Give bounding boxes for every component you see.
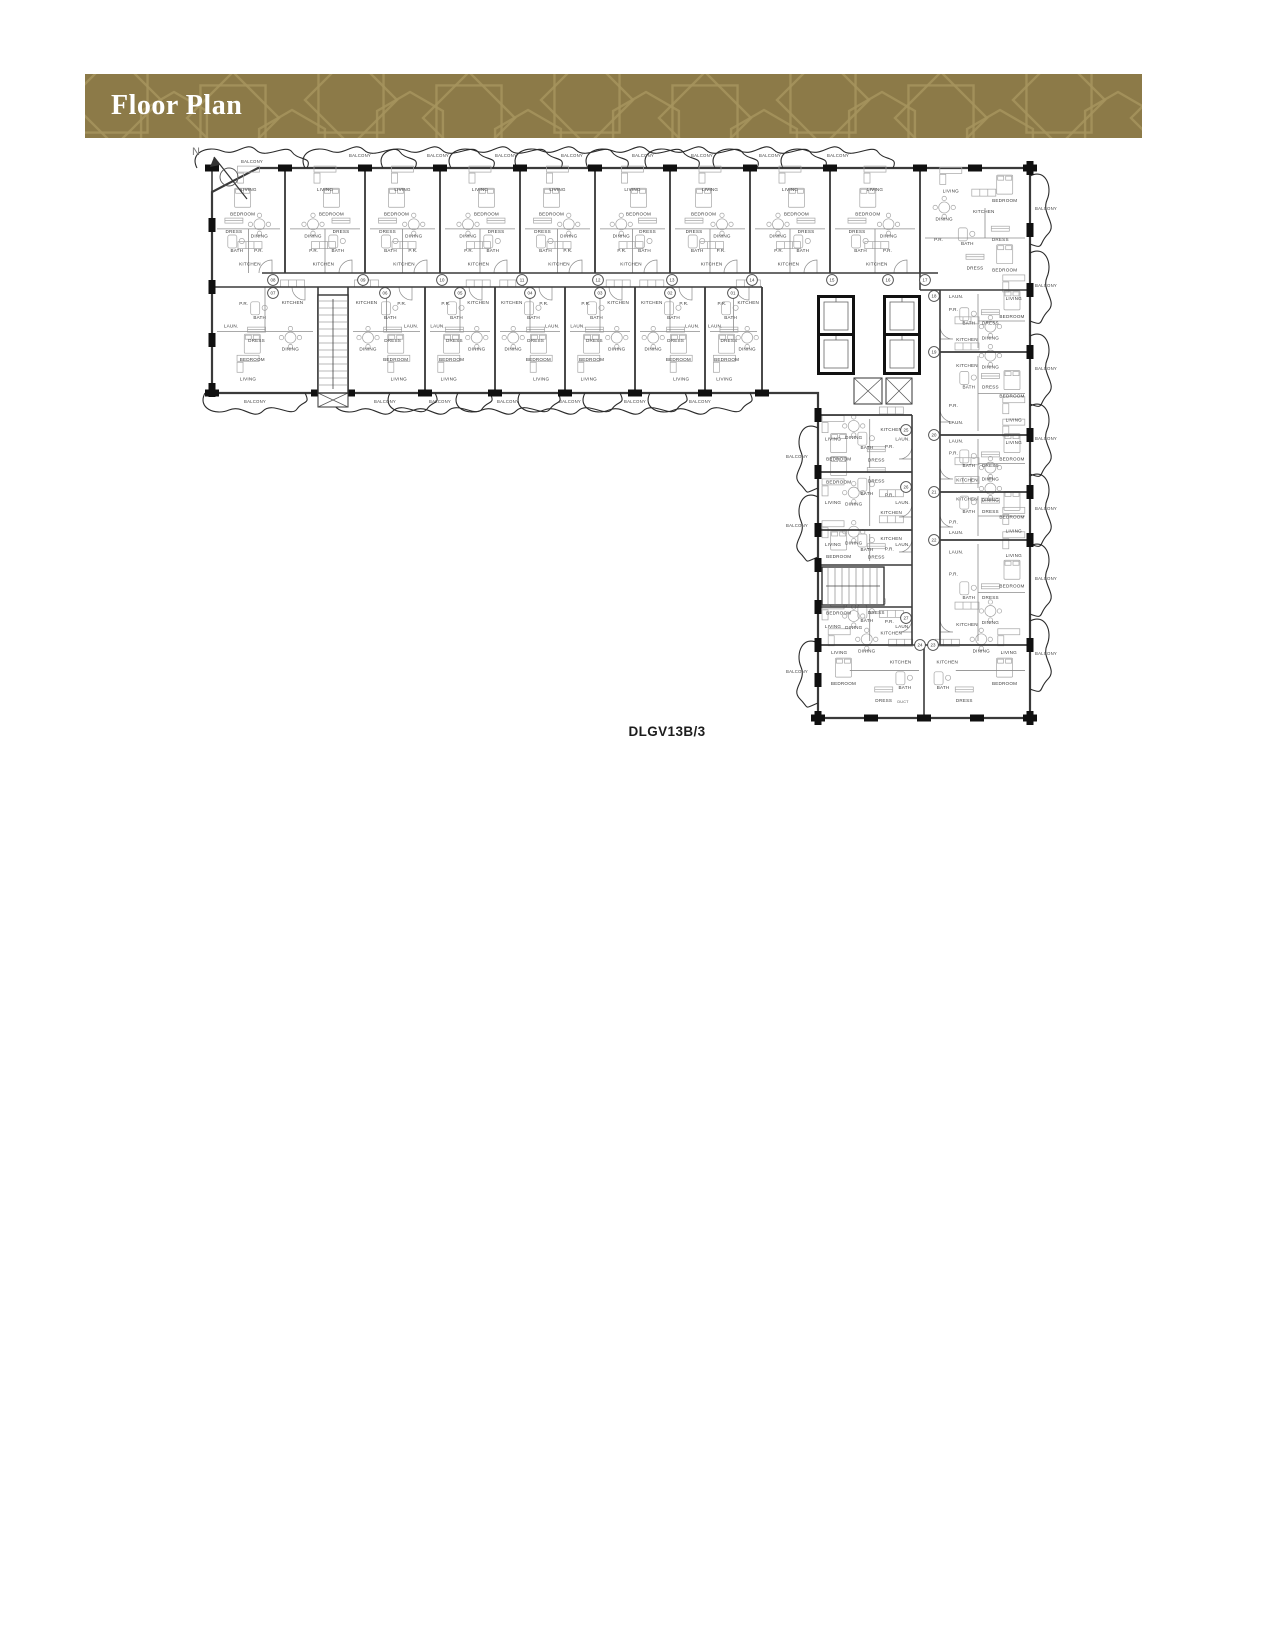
room-label: KITCHEN xyxy=(881,630,903,635)
room-label: BALCONY xyxy=(349,153,371,158)
room-label: DRESS xyxy=(982,321,999,326)
room-label: KITCHEN xyxy=(890,659,912,664)
window-pier xyxy=(970,715,984,722)
room-label: BATH xyxy=(962,509,975,514)
room-label: BATH xyxy=(230,248,243,253)
room-label: DINING xyxy=(505,347,523,352)
room-label: P.R. xyxy=(934,237,943,242)
room-label: LIVING xyxy=(1006,296,1022,301)
room-label: DRESS xyxy=(586,338,603,343)
room-label: BATH xyxy=(962,463,975,468)
room-label: BALCONY xyxy=(1035,506,1057,511)
room-label: KITCHEN xyxy=(607,300,629,305)
room-label: DINING xyxy=(845,625,863,630)
window-pier xyxy=(663,165,677,172)
room-label: LAUN. xyxy=(895,624,910,629)
room-label: P.R. xyxy=(408,248,417,253)
room-label: DRESS xyxy=(333,229,350,234)
room-label: KITCHEN xyxy=(956,497,978,502)
room-label: BEDROOM xyxy=(992,268,1017,273)
room-label: BATH xyxy=(691,248,704,253)
unit-number: 02 xyxy=(668,291,673,296)
window-pier xyxy=(1027,283,1034,297)
room-label: LAUN. xyxy=(570,323,585,328)
room-label: KITCHEN xyxy=(501,300,523,305)
window-pier xyxy=(418,390,432,397)
unit-number: 27 xyxy=(904,616,909,621)
room-label: BALCONY xyxy=(1035,283,1057,288)
room-label: P.R. xyxy=(679,301,688,306)
room-label: DINING xyxy=(845,435,863,440)
room-label: LAUN. xyxy=(404,323,419,328)
room-label: BALCONY xyxy=(624,399,646,404)
window-pier xyxy=(588,165,602,172)
room-label: BALCONY xyxy=(1035,436,1057,441)
room-label: KITCHEN xyxy=(701,262,723,267)
room-label: LIVING xyxy=(472,187,488,192)
room-label: KITCHEN xyxy=(956,622,978,627)
window-pier xyxy=(743,165,757,172)
room-label: DRESS xyxy=(667,338,684,343)
room-label: DINING xyxy=(769,233,787,238)
unit-number: 23 xyxy=(931,643,936,648)
room-label: KITCHEN xyxy=(778,262,800,267)
room-label: BEDROOM xyxy=(999,394,1024,399)
room-label: BATH xyxy=(861,618,874,623)
room-label: BALCONY xyxy=(244,399,266,404)
room-label: DRESS xyxy=(982,509,999,514)
unit-number: 11 xyxy=(520,278,525,283)
room-label: DRESS xyxy=(639,229,656,234)
unit-number: 03 xyxy=(598,291,603,296)
room-label: DRESS xyxy=(992,237,1009,242)
window-pier xyxy=(209,218,216,232)
room-label: P.R. xyxy=(464,248,473,253)
window-pier xyxy=(209,280,216,294)
window-pier xyxy=(513,165,527,172)
room-label: LAUN. xyxy=(224,323,239,328)
unit-number: 16 xyxy=(886,278,891,283)
room-label: P.R. xyxy=(239,301,248,306)
room-label: BALCONY xyxy=(429,399,451,404)
room-label: BATH xyxy=(796,248,809,253)
room-label: LIVING xyxy=(317,187,333,192)
room-label: BALCONY xyxy=(1035,366,1057,371)
unit-number: 04 xyxy=(528,291,533,296)
room-label: DRESS xyxy=(446,338,463,343)
window-pier xyxy=(815,465,822,479)
window-pier xyxy=(358,165,372,172)
room-label: DINING xyxy=(982,498,1000,503)
room-label: DINING xyxy=(982,336,1000,341)
room-label: KITCHEN xyxy=(973,209,995,214)
room-label: LAUN. xyxy=(685,323,700,328)
room-label: BATH xyxy=(253,315,266,320)
room-label: BALCONY xyxy=(786,454,808,459)
room-label: KITCHEN xyxy=(866,262,888,267)
unit-number: 25 xyxy=(904,428,909,433)
room-label: BEDROOM xyxy=(784,211,809,216)
room-label: DINING xyxy=(858,648,876,653)
room-label: LIVING xyxy=(702,187,718,192)
room-label: KITCHEN xyxy=(738,300,760,305)
room-label: DRESS xyxy=(868,458,885,463)
room-label: LIVING xyxy=(782,187,798,192)
room-label: KITCHEN xyxy=(881,510,903,515)
room-label: KITCHEN xyxy=(282,300,304,305)
room-label: BATH xyxy=(962,321,975,326)
room-label: P.R. xyxy=(774,248,783,253)
room-label: LIVING xyxy=(831,650,847,655)
room-label: LIVING xyxy=(240,187,256,192)
room-label: BALCONY xyxy=(691,153,713,158)
room-label: BATH xyxy=(527,315,540,320)
room-label: LIVING xyxy=(825,624,841,629)
room-label: P.R. xyxy=(718,301,727,306)
unit-number: 17 xyxy=(923,278,928,283)
unit-number: 18 xyxy=(932,294,937,299)
room-label: BALCONY xyxy=(241,159,263,164)
window-pier xyxy=(811,715,825,722)
room-label: DINING xyxy=(608,347,626,352)
room-label: LAUN. xyxy=(949,550,964,555)
window-pier xyxy=(433,165,447,172)
room-label: BALCONY xyxy=(497,399,519,404)
room-label: P.R. xyxy=(581,301,590,306)
room-label: LIVING xyxy=(624,187,640,192)
room-label: KITCHEN xyxy=(881,427,903,432)
room-label: KITCHEN xyxy=(313,262,335,267)
room-label: BATH xyxy=(638,248,651,253)
room-label: BEDROOM xyxy=(826,457,851,462)
room-label: P.R. xyxy=(883,248,892,253)
room-label: DINING xyxy=(845,502,863,507)
window-pier xyxy=(1027,533,1034,547)
room-label: LIVING xyxy=(1006,528,1022,533)
room-label: BEDROOM xyxy=(539,211,564,216)
room-label: DRESS xyxy=(384,338,401,343)
room-label: BATH xyxy=(590,315,603,320)
room-label: DRESS xyxy=(721,338,738,343)
unit-number: 12 xyxy=(596,278,601,283)
room-label: BATH xyxy=(384,248,397,253)
room-label: LAUN. xyxy=(949,438,964,443)
room-label: P.R. xyxy=(949,572,958,577)
window-pier xyxy=(209,383,216,397)
room-label: BEDROOM xyxy=(826,554,851,559)
room-label: P.R. xyxy=(309,248,318,253)
room-label: P.R. xyxy=(563,248,572,253)
room-label: DINING xyxy=(936,216,954,221)
room-label: BEDROOM xyxy=(691,211,716,216)
room-label: BATH xyxy=(861,491,874,496)
room-label: DRESS xyxy=(982,595,999,600)
room-label: KITCHEN xyxy=(393,262,415,267)
room-label: P.R. xyxy=(539,301,548,306)
unit-number: 13 xyxy=(670,278,675,283)
room-label: DRESS xyxy=(982,385,999,390)
room-label: DINING xyxy=(251,233,269,238)
room-label: DRESS xyxy=(798,229,815,234)
unit-number: 19 xyxy=(932,350,937,355)
room-label: DRESS xyxy=(248,338,265,343)
window-pier xyxy=(864,715,878,722)
unit-number: 20 xyxy=(932,433,937,438)
room-label: DRESS xyxy=(875,698,892,703)
room-label: DINING xyxy=(973,648,991,653)
room-label: KITCHEN xyxy=(356,300,378,305)
room-label: P.R. xyxy=(717,248,726,253)
unit-number: 10 xyxy=(440,278,445,283)
unit-number: 08 xyxy=(271,278,276,283)
room-label: LIVING xyxy=(867,187,883,192)
room-label: DRESS xyxy=(967,265,984,270)
room-label: BATH xyxy=(961,241,974,246)
room-label: BALCONY xyxy=(759,153,781,158)
room-label: BATH xyxy=(962,595,975,600)
window-pier xyxy=(698,390,712,397)
room-label: BATH xyxy=(861,547,874,552)
room-label: DINING xyxy=(739,347,757,352)
room-label: BATH xyxy=(937,685,950,690)
room-label: LIVING xyxy=(716,376,732,381)
room-label: BATH xyxy=(962,385,975,390)
unit-number: 07 xyxy=(271,291,276,296)
room-label: BALCONY xyxy=(1035,206,1057,211)
room-label: BEDROOM xyxy=(579,357,604,362)
room-label: BATH xyxy=(450,315,463,320)
window-pier xyxy=(1027,223,1034,237)
room-label: LIVING xyxy=(673,376,689,381)
room-label: BEDROOM xyxy=(999,457,1024,462)
room-label: KITCHEN xyxy=(620,262,642,267)
room-label: BATH xyxy=(331,248,344,253)
room-label: DRESS xyxy=(686,229,703,234)
window-pier xyxy=(823,165,837,172)
unit-number: 14 xyxy=(750,278,755,283)
room-label: LIVING xyxy=(1001,650,1017,655)
room-label: LAUN. xyxy=(708,323,723,328)
room-label: BEDROOM xyxy=(626,211,651,216)
room-label: DINING xyxy=(359,347,377,352)
room-label: BALCONY xyxy=(786,669,808,674)
window-pier xyxy=(1027,345,1034,359)
room-label: DINING xyxy=(468,347,486,352)
unit-number: 22 xyxy=(932,538,937,543)
room-label: BALCONY xyxy=(1035,651,1057,656)
room-label: LIVING xyxy=(943,188,959,193)
window-pier xyxy=(755,390,769,397)
room-label: BEDROOM xyxy=(384,211,409,216)
room-label: P.R. xyxy=(949,307,958,312)
room-label: BEDROOM xyxy=(992,681,1017,686)
room-label: LIVING xyxy=(825,500,841,505)
window-pier xyxy=(815,600,822,614)
room-label: KITCHEN xyxy=(548,262,570,267)
room-label: LIVING xyxy=(549,187,565,192)
room-label: BEDROOM xyxy=(383,357,408,362)
room-label: BEDROOM xyxy=(999,314,1024,319)
room-label: DUCT xyxy=(897,700,909,704)
room-label: DRESS xyxy=(868,555,885,560)
north-label: N xyxy=(192,146,200,158)
unit-number: 06 xyxy=(383,291,388,296)
room-label: BEDROOM xyxy=(230,211,255,216)
room-label: BALCONY xyxy=(559,399,581,404)
unit-number: 26 xyxy=(904,485,909,490)
plan-code-label: DLGV13B/3 xyxy=(628,724,705,739)
room-label: BATH xyxy=(486,248,499,253)
window-pier xyxy=(278,165,292,172)
window-pier xyxy=(209,333,216,347)
room-label: DINING xyxy=(282,347,300,352)
room-label: DRESS xyxy=(868,610,885,615)
room-label: BEDROOM xyxy=(240,357,265,362)
room-label: P.R. xyxy=(885,492,894,497)
room-label: BALCONY xyxy=(632,153,654,158)
window-pier xyxy=(1027,485,1034,499)
room-label: DINING xyxy=(982,477,1000,482)
room-label: BEDROOM xyxy=(992,198,1017,203)
unit-number: 09 xyxy=(361,278,366,283)
room-label: KITCHEN xyxy=(937,659,959,664)
room-label: LAUN. xyxy=(949,420,964,425)
unit-number: 05 xyxy=(458,291,463,296)
room-label: LIVING xyxy=(394,187,410,192)
room-label: BALCONY xyxy=(1035,576,1057,581)
room-label: DINING xyxy=(845,541,863,546)
window-pier xyxy=(628,390,642,397)
window-pier xyxy=(815,408,822,422)
unit-number: 01 xyxy=(731,291,736,296)
room-label: BATH xyxy=(899,685,912,690)
room-label: KITCHEN xyxy=(467,300,489,305)
room-label: DRESS xyxy=(956,698,973,703)
room-label: LIVING xyxy=(391,376,407,381)
room-label: DINING xyxy=(880,233,898,238)
window-pier xyxy=(968,165,982,172)
unit-number: 15 xyxy=(830,278,835,283)
room-label: P.R. xyxy=(617,248,626,253)
room-label: BEDROOM xyxy=(826,480,851,485)
window-pier xyxy=(815,558,822,572)
room-label: BEDROOM xyxy=(855,211,880,216)
room-label: DINING xyxy=(713,233,731,238)
room-label: P.R. xyxy=(949,403,958,408)
room-label: BALCONY xyxy=(827,153,849,158)
balcony-outline xyxy=(797,426,818,492)
room-label: BEDROOM xyxy=(526,357,551,362)
room-label: BATH xyxy=(724,315,737,320)
window-pier xyxy=(913,165,927,172)
room-label: BEDROOM xyxy=(474,211,499,216)
room-label: DRESS xyxy=(527,338,544,343)
room-label: BATH xyxy=(667,315,680,320)
room-label: BALCONY xyxy=(786,523,808,528)
room-label: BATH xyxy=(861,445,874,450)
room-label: LAUN. xyxy=(895,500,910,505)
room-label: KITCHEN xyxy=(956,363,978,368)
room-label: DINING xyxy=(982,620,1000,625)
room-label: LIVING xyxy=(1006,553,1022,558)
room-label: DINING xyxy=(645,347,663,352)
unit-number: 24 xyxy=(918,643,923,648)
window-pier xyxy=(488,390,502,397)
room-label: LIVING xyxy=(581,376,597,381)
room-label: BATH xyxy=(384,315,397,320)
room-label: BEDROOM xyxy=(439,357,464,362)
room-label: LIVING xyxy=(1006,418,1022,423)
room-label: DINING xyxy=(304,233,322,238)
unit-number: 21 xyxy=(932,490,937,495)
room-label: P.R. xyxy=(885,619,894,624)
room-label: LAUN. xyxy=(949,530,964,535)
room-label: BEDROOM xyxy=(319,211,344,216)
room-label: BEDROOM xyxy=(999,583,1024,588)
room-label: LIVING xyxy=(825,437,841,442)
window-pier xyxy=(815,673,822,687)
room-label: LIVING xyxy=(825,542,841,547)
room-label: BATH xyxy=(539,248,552,253)
room-label: LIVING xyxy=(533,376,549,381)
room-label: BEDROOM xyxy=(714,357,739,362)
room-label: DRESS xyxy=(534,229,551,234)
room-label: P.R. xyxy=(397,301,406,306)
room-label: KITCHEN xyxy=(239,262,261,267)
room-label: P.R. xyxy=(885,444,894,449)
room-label: P.R. xyxy=(949,520,958,525)
room-label: DRESS xyxy=(982,463,999,468)
room-label: DINING xyxy=(613,233,631,238)
room-label: BALCONY xyxy=(427,153,449,158)
room-label: LAUN. xyxy=(895,437,910,442)
room-label: BATH xyxy=(854,248,867,253)
window-pier xyxy=(815,638,822,652)
room-label: DRESS xyxy=(488,229,505,234)
room-label: KITCHEN xyxy=(468,262,490,267)
window-pier xyxy=(1027,161,1034,175)
room-label: DINING xyxy=(459,233,477,238)
room-label: BEDROOM xyxy=(666,357,691,362)
room-label: DRESS xyxy=(379,229,396,234)
room-label: LAUN. xyxy=(895,542,910,547)
room-label: DRESS xyxy=(868,478,885,483)
room-label: P.R. xyxy=(254,248,263,253)
room-label: KITCHEN xyxy=(641,300,663,305)
room-label: P.R. xyxy=(441,301,450,306)
room-label: LIVING xyxy=(1006,440,1022,445)
window-pier xyxy=(1027,428,1034,442)
room-label: KITCHEN xyxy=(881,536,903,541)
room-label: DRESS xyxy=(225,229,242,234)
window-pier xyxy=(1027,638,1034,652)
room-label: LAUN. xyxy=(949,294,964,299)
room-label: KITCHEN xyxy=(956,337,978,342)
room-label: KITCHEN xyxy=(956,478,978,483)
room-label: DINING xyxy=(982,365,1000,370)
room-label: P.R. xyxy=(949,450,958,455)
room-label: BALCONY xyxy=(561,153,583,158)
room-label: LIVING xyxy=(240,376,256,381)
room-label: BALCONY xyxy=(495,153,517,158)
room-label: BEDROOM xyxy=(826,611,851,616)
floor-plan-drawing: LIVINGBEDROOMDRESSDININGBATHP.R.KITCHENL… xyxy=(0,0,1275,1650)
room-label: LIVING xyxy=(441,376,457,381)
room-label: BEDROOM xyxy=(831,681,856,686)
room-label: LAUN. xyxy=(545,323,560,328)
room-label: BALCONY xyxy=(374,399,396,404)
room-label: DINING xyxy=(405,233,423,238)
